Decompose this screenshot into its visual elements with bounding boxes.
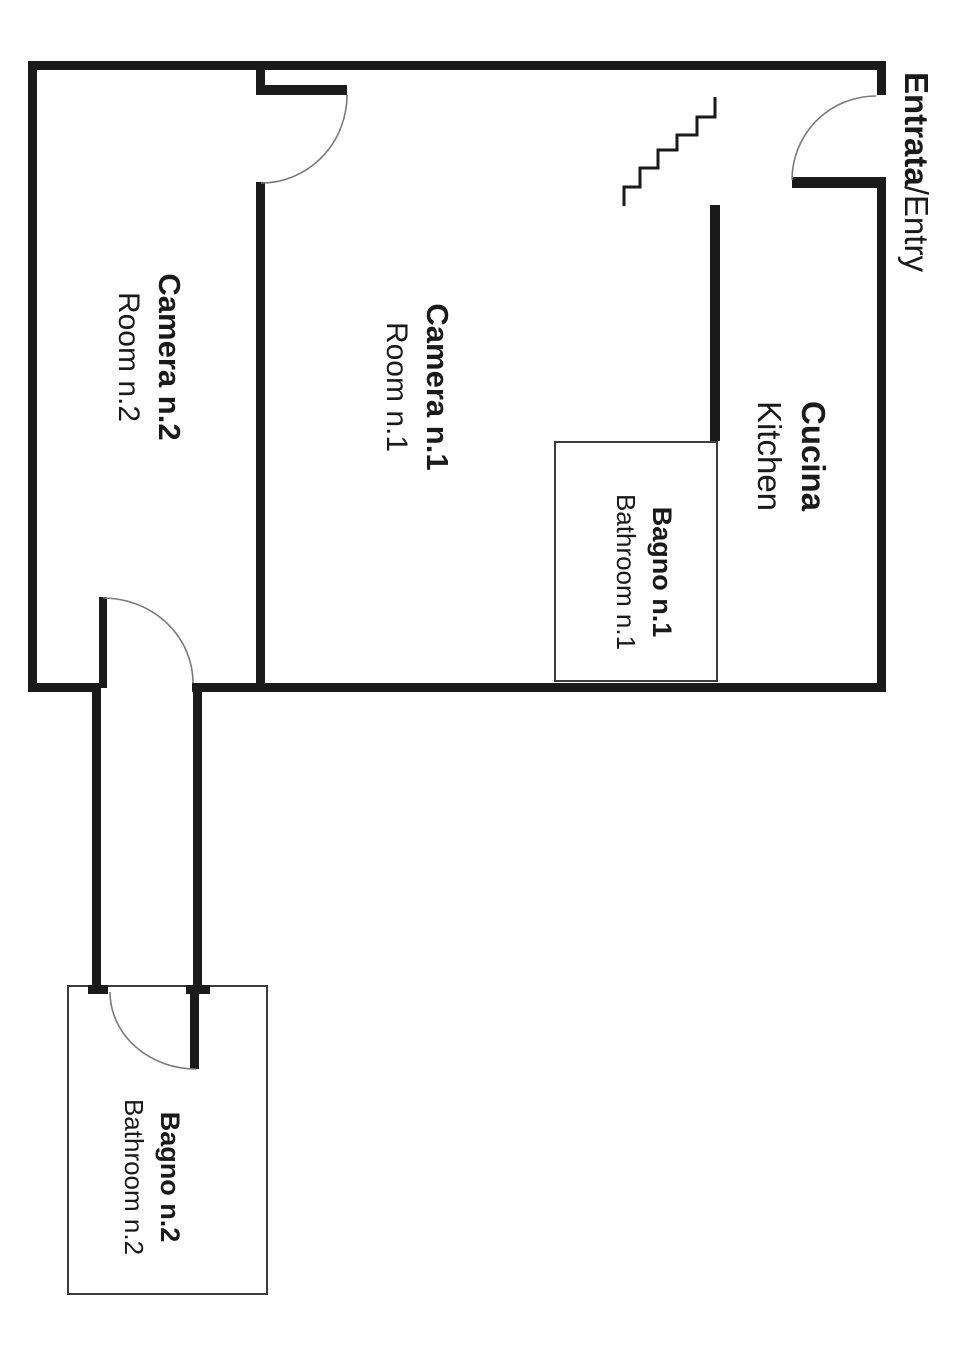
wall-bottom-exterior-left	[28, 683, 99, 692]
room-2-label-english: Room n.2	[109, 292, 149, 422]
kitchen-label-italian: Cucina	[791, 401, 835, 511]
wall-corridor-right	[193, 688, 202, 988]
wall-corridor-left	[92, 688, 101, 988]
stairs-icon	[624, 97, 715, 206]
wall-corridor-left-foot	[88, 985, 108, 994]
bathroom-1-label-italian: Bagno n.1	[643, 507, 679, 638]
kitchen-label: Cucina Kitchen	[747, 381, 835, 531]
wall-bottom-exterior-right	[192, 683, 886, 692]
bathroom-1-label-english: Bathroom n.1	[609, 494, 643, 650]
wall-left-exterior	[28, 61, 37, 692]
corridor-door-leaf	[99, 597, 107, 688]
entry-door-swing-arc	[792, 96, 876, 180]
entry-label: Entrata/Entry	[896, 52, 936, 292]
wall-right-exterior-upper-stub	[877, 61, 886, 95]
room-1-label-english: Room n.1	[377, 322, 417, 452]
corridor-door-swing-arc	[103, 598, 193, 683]
room-1-label-italian: Camera n.1	[416, 303, 457, 470]
wall-kitchen-divider	[710, 205, 720, 441]
bathroom-2-label-english: Bathroom n.2	[117, 1099, 151, 1255]
room-2-label-italian: Camera n.2	[148, 273, 189, 440]
wall-corridor-right-foot	[186, 985, 210, 994]
room-divider-door-leaf	[262, 85, 347, 95]
kitchen-label-english: Kitchen	[747, 401, 791, 511]
bathroom-2-label: Bagno n.2 Bathroom n.2	[122, 1082, 182, 1272]
entry-label-separator: /	[894, 186, 938, 195]
room-2-label: Camera n.2 Room n.2	[109, 257, 189, 457]
bathroom-2-label-italian: Bagno n.2	[151, 1112, 187, 1243]
entry-door-leaf	[792, 177, 886, 188]
wall-top-exterior	[28, 61, 886, 70]
room-1-label: Camera n.1 Room n.1	[377, 287, 457, 487]
wall-room-divider	[256, 182, 265, 692]
room-divider-door-swing-arc	[261, 95, 347, 183]
wall-right-exterior	[877, 177, 886, 692]
entry-label-english: Entry	[894, 195, 938, 272]
bathroom-2-door-leaf	[190, 994, 199, 1069]
entry-label-italian: Entrata	[894, 72, 938, 186]
floor-plan: Entrata/Entry Camera n.2 Room n.2 Camera…	[0, 0, 960, 1358]
bathroom-1-label: Bagno n.1 Bathroom n.1	[608, 477, 680, 667]
